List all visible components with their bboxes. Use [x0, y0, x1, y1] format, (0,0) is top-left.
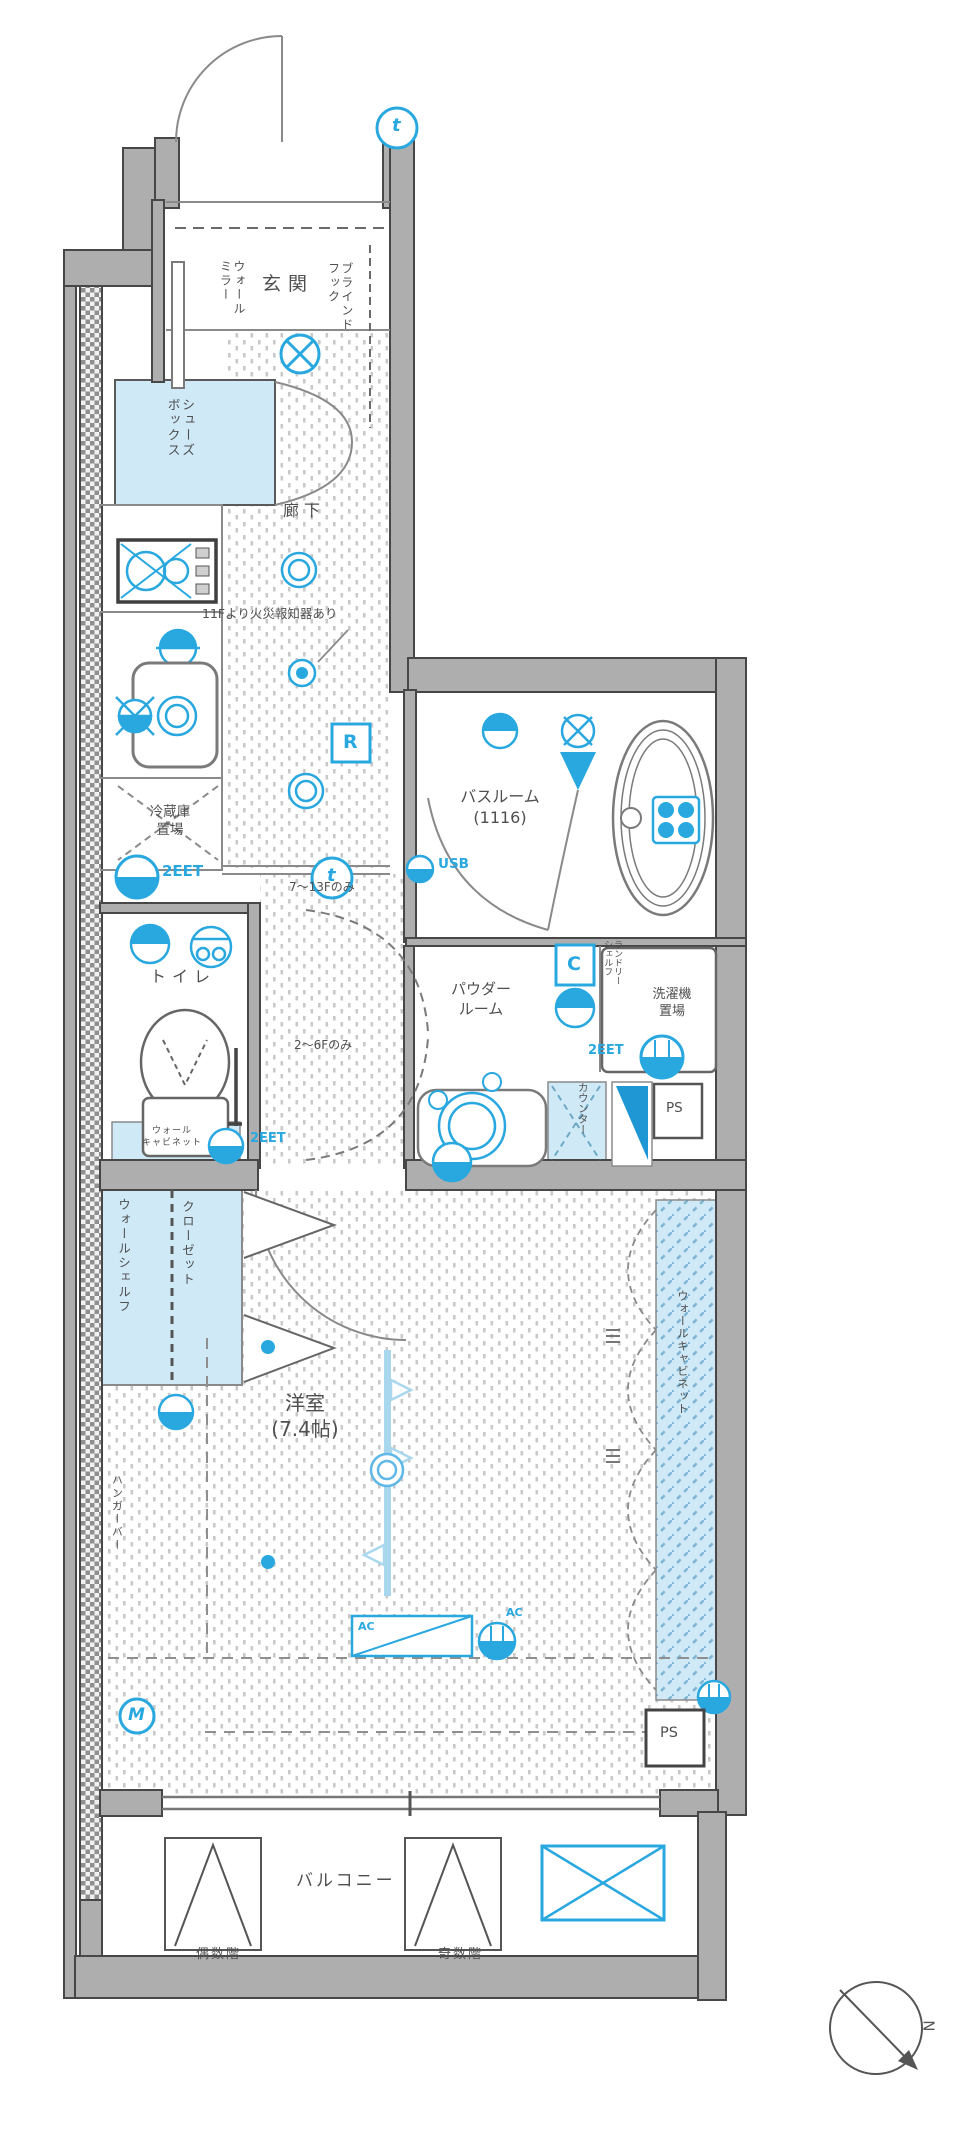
- balcony-hatch-even: [165, 1838, 261, 1950]
- wall-mirror-label: ウォール ミラー: [218, 260, 245, 316]
- odd-floor-label: 奇数階: [438, 1946, 483, 1963]
- t-symbol-hall-label: t: [327, 864, 336, 888]
- bedroom-label: 洋室 (7.4帖): [238, 1390, 372, 1443]
- hanger-bar-label: ハンガーバー: [110, 1474, 122, 1552]
- toilet-label: トイレ: [150, 966, 216, 987]
- toilet-light-icon: [131, 925, 169, 963]
- outlet-laundry-label: 2EET: [588, 1042, 624, 1059]
- usb-outlet-icon: [407, 856, 433, 882]
- floor-plan: 玄関 ウォール ミラー ブラインド フック シューズ ボックス 廊下 11Fより…: [0, 0, 960, 2156]
- t-symbol-top-label: t: [392, 114, 401, 138]
- meter-label: M: [128, 1704, 145, 1726]
- fire-alarm-note: 11Fより火災報知器あり: [202, 606, 337, 623]
- circuit-label: C: [567, 952, 581, 977]
- ps-upper-label: PS: [666, 1100, 683, 1118]
- floors-2-6-note: 2〜6Fのみ: [294, 1038, 352, 1054]
- balcony-hatch-odd: [405, 1838, 501, 1950]
- wall-shelf-label: ウォールシェルフ: [116, 1198, 130, 1314]
- wall-mirror-shape: [172, 262, 184, 388]
- fridge-label: 冷蔵庫 置場: [118, 804, 222, 840]
- outlet-bedroom-right-icon: [698, 1681, 730, 1713]
- toilet-fan-icon: [191, 927, 231, 967]
- laundry-label: 洗濯機 置場: [630, 986, 714, 1020]
- toilet-cabinet-label: ウォール キャビネット: [116, 1126, 228, 1150]
- floor-plan-drawing: [0, 0, 960, 2156]
- usb-label: USB: [438, 856, 469, 874]
- bath-jet-icon: [653, 797, 699, 843]
- entrance-light-icon: [281, 335, 319, 373]
- stove: [118, 540, 216, 602]
- even-floor-label: 偶数階: [196, 1946, 241, 1963]
- shower-icon: [560, 715, 596, 790]
- floor-dot-2: [261, 1555, 275, 1569]
- balcony-label: バルコニー: [296, 1870, 396, 1892]
- outlet-laundry-icon: [641, 1036, 683, 1078]
- powder-room-label: パウダー ルーム: [424, 980, 538, 1020]
- outlet-kitchen-label: 2EET: [162, 862, 203, 882]
- ac-unit-label: AC: [358, 1620, 375, 1635]
- water-heater-wedge: [612, 1082, 652, 1166]
- outlet-kitchen-icon: [116, 856, 158, 898]
- shoe-box: [115, 380, 275, 505]
- ac-outlet-icon: [479, 1623, 515, 1659]
- balcony-crossed-box: [542, 1846, 664, 1920]
- closet-label: クローゼット: [180, 1200, 194, 1287]
- entrance-label: 玄関: [262, 272, 314, 297]
- kitchen-wall-light-icon: [156, 630, 200, 666]
- compass: [830, 1982, 922, 2074]
- wall-cabinet-strip: [656, 1200, 718, 1700]
- blind-hook-label: ブラインド フック: [326, 262, 353, 332]
- bath-light-icon: [483, 714, 517, 748]
- counter-label: カウンター: [576, 1082, 588, 1135]
- bathroom-label: バスルーム (1116): [430, 786, 570, 828]
- remote-label: R: [343, 730, 358, 755]
- washbasin: [418, 1073, 546, 1181]
- ac-outlet-label: AC: [506, 1606, 523, 1621]
- powder-light-icon: [556, 989, 594, 1027]
- shoe-box-label: シューズ ボックス: [164, 398, 193, 458]
- hallway-label: 廊下: [283, 500, 325, 521]
- wall-cabinet-label: ウォールキャビネット: [676, 1290, 689, 1415]
- outlet-toilet-label: 2EET: [250, 1130, 286, 1147]
- north-label: N: [918, 2020, 938, 2031]
- laundry-shelf-label: ランドリー シェルフ: [602, 940, 622, 985]
- floors-7-13-note: 7〜13Fのみ: [289, 880, 355, 896]
- ps-lower-label: PS: [660, 1724, 678, 1743]
- entrance-door: [176, 36, 282, 142]
- kitchen-faucet-icon: [116, 697, 154, 735]
- floor-dot-1: [261, 1340, 275, 1354]
- outlet-bedroom-icon: [159, 1395, 193, 1429]
